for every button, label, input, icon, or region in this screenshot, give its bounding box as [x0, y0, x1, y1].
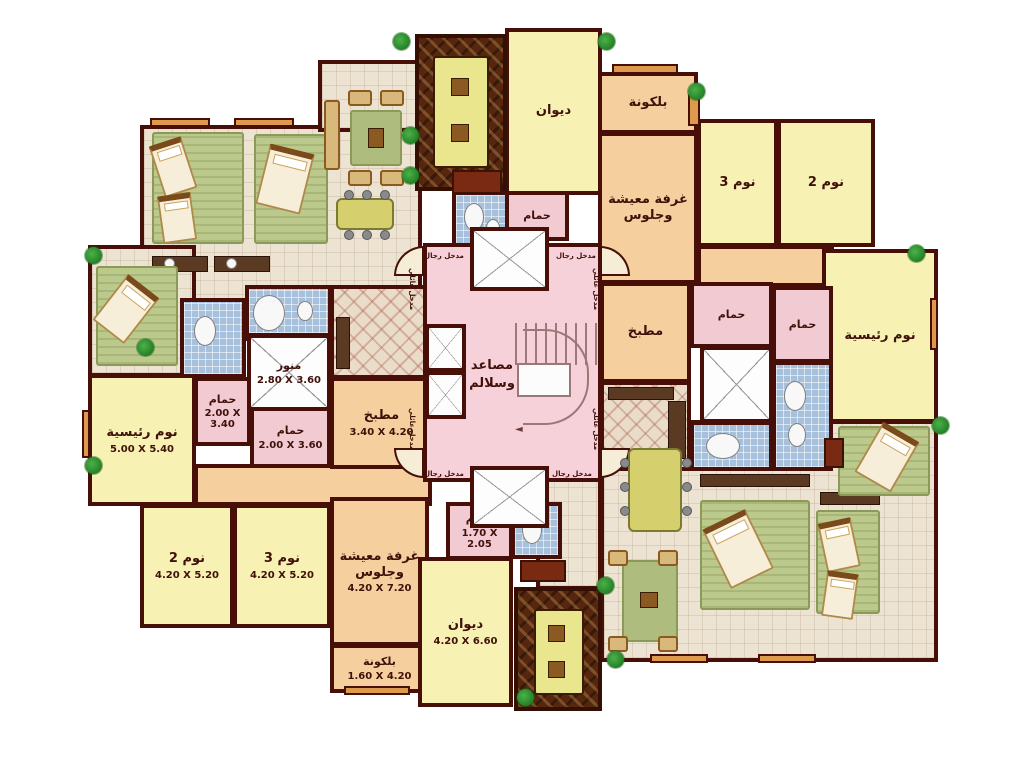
elevator-shaft-bottom	[470, 466, 549, 528]
stove-icon	[608, 387, 674, 400]
room-hammam-right-2: حمام	[772, 286, 833, 363]
room-label: غرفة معيشة وجلوس	[602, 192, 694, 225]
room-label: ديوان	[445, 617, 486, 633]
room-label: نوم 3	[716, 175, 758, 191]
seat-mat	[451, 78, 469, 96]
room-dims: 4.20 X 5.20	[250, 570, 314, 581]
chair	[362, 190, 372, 200]
room-bedroom2-top-right: نوم 2	[777, 119, 875, 247]
plant-icon	[137, 339, 154, 356]
room-label: منور	[274, 359, 305, 373]
plant-icon	[517, 689, 534, 706]
staircase: ◄	[515, 323, 599, 435]
entrance-label-men: مدخل رجال	[552, 470, 592, 478]
window-ledge	[344, 686, 410, 695]
plant-icon	[598, 33, 615, 50]
dining-table	[336, 198, 394, 230]
chair	[380, 190, 390, 200]
armchair	[658, 550, 678, 566]
majlis-rug	[433, 56, 489, 168]
window-ledge	[930, 298, 938, 350]
room-label: بلكونة	[360, 655, 399, 669]
lightwell-right	[700, 346, 773, 423]
stair-direction-arrow: ◄	[515, 424, 523, 435]
bed	[821, 570, 859, 620]
sofa	[324, 100, 340, 170]
room-label: نوم رئيسية	[103, 425, 180, 441]
room-master-left: نوم رئيسية 5.00 X 5.40	[88, 374, 196, 506]
armchair	[608, 636, 628, 652]
elevator-cab-2	[425, 371, 466, 419]
room-label: حمام	[274, 424, 308, 438]
plant-icon	[402, 127, 419, 144]
vanity-counter	[214, 256, 270, 272]
chair	[620, 458, 630, 468]
room-master-right: نوم رئيسية	[822, 249, 938, 423]
room-label: نوم رئيسية	[841, 328, 918, 344]
room-dims: 4.20 X 5.20	[155, 570, 219, 581]
plant-icon	[908, 245, 925, 262]
room-label: حمام	[786, 318, 820, 332]
majlis-rug	[534, 609, 584, 695]
fridge-icon	[336, 317, 350, 369]
armchair	[348, 170, 372, 186]
room-bedroom2-bottom-left: نوم 2 4.20 X 5.20	[140, 504, 234, 628]
window-ledge	[234, 118, 294, 127]
console-table	[520, 560, 566, 582]
armchair	[380, 90, 404, 106]
majlis-top	[415, 34, 507, 191]
room-dims: 1.70 X 2.05	[450, 528, 509, 550]
armchair	[658, 636, 678, 652]
core-label: مصاعد وسلالم	[457, 357, 527, 393]
plant-icon	[932, 417, 949, 434]
room-label: مطبخ	[361, 408, 402, 424]
room-bedroom3-top-right: نوم 3	[697, 119, 778, 247]
entrance-label-men: مدخل رجال	[556, 252, 596, 260]
plant-icon	[597, 577, 614, 594]
room-label: حمام	[206, 393, 240, 407]
armchair	[348, 90, 372, 106]
room-label: حمام	[520, 209, 554, 223]
room-kitchen-right: مطبخ	[600, 282, 691, 383]
room-label: مطبخ	[625, 324, 666, 340]
room-dims: 2.00 X 3.40	[198, 408, 247, 430]
wardrobe	[824, 438, 844, 468]
seat-mat	[548, 661, 565, 678]
room-balcony-top-right: بلكونة	[598, 72, 698, 134]
room-dims: 2.00 X 3.60	[258, 440, 322, 451]
plant-icon	[393, 33, 410, 50]
chair	[344, 230, 354, 240]
room-label: حمام	[715, 308, 749, 322]
room-dims: 4.20 X 6.60	[433, 636, 497, 647]
room-label: ديوان	[533, 103, 574, 119]
plant-icon	[607, 651, 624, 668]
core-label-line2: وسلالم	[457, 375, 527, 393]
room-hammam-left-1: حمام 2.00 X 3.40	[194, 377, 251, 446]
bathroom-left-blue	[245, 285, 332, 337]
room-label: نوم 2	[805, 175, 847, 191]
room-dims: 4.20 X 7.20	[347, 583, 411, 594]
elevator-shaft-top	[470, 227, 549, 291]
window-ledge	[758, 654, 816, 663]
coffee-table	[640, 592, 658, 608]
bed	[157, 192, 197, 244]
room-lightwell-left: منور 2.80 X 3.60	[247, 334, 331, 411]
window-ledge	[650, 654, 708, 663]
chair	[682, 506, 692, 516]
room-dims: 3.40 X 4.20	[349, 427, 413, 438]
core-label-line1: مصاعد	[457, 357, 527, 375]
bathtub-icon	[706, 433, 740, 459]
room-dims: 1.60 X 4.20	[347, 671, 411, 682]
chair	[362, 230, 372, 240]
armchair	[380, 170, 404, 186]
right-apartment-corridor	[697, 245, 834, 287]
sink-icon	[226, 258, 237, 269]
room-living-bottom-left: غرفة معيشة وجلوس 4.20 X 7.20	[330, 497, 429, 646]
room-diwan-bottom: ديوان 4.20 X 6.60	[418, 557, 513, 707]
room-label: نوم 3	[261, 551, 303, 567]
entrance-label-men: مدخل رجال	[424, 252, 464, 260]
plant-icon	[402, 167, 419, 184]
room-label: غرفة معيشة وجلوس	[334, 549, 425, 582]
entrance-label-family: مدخل عائلي	[592, 268, 600, 310]
bathtub-icon	[784, 381, 806, 411]
chair	[682, 458, 692, 468]
room-dims: 2.80 X 3.60	[257, 375, 321, 386]
plant-icon	[85, 247, 102, 264]
room-label: بلكونة	[626, 95, 671, 111]
entrance-label-family: مدخل عائلي	[408, 268, 416, 310]
floor-plan: ديوان حمام بلكونة غرفة معيشة وجلوس نوم 3…	[0, 0, 1024, 768]
toilet-icon	[788, 423, 806, 447]
console-table	[452, 170, 502, 194]
wardrobe	[700, 474, 810, 487]
room-bedroom3-bottom-left: نوم 3 4.20 X 5.20	[233, 504, 331, 628]
plant-icon	[688, 83, 705, 100]
entrance-label-family: مدخل عائلي	[592, 408, 600, 450]
bathroom-right-low-blue	[690, 421, 773, 471]
plant-icon	[85, 457, 102, 474]
chair	[380, 230, 390, 240]
toilet-icon	[297, 301, 313, 321]
bathtub-icon	[253, 295, 285, 331]
room-label: نوم 2	[166, 551, 208, 567]
room-hammam-left-2: حمام 2.00 X 3.60	[250, 407, 331, 468]
window-ledge	[612, 64, 678, 74]
kitchen-left-floor	[330, 285, 433, 379]
window-ledge	[82, 410, 90, 458]
entrance-label-men: مدخل رجال	[424, 470, 464, 478]
entrance-label-family: مدخل عائلي	[408, 408, 416, 450]
chair	[620, 506, 630, 516]
room-diwan-top: ديوان	[505, 28, 602, 195]
room-dims: 5.00 X 5.40	[110, 444, 174, 455]
chair	[682, 482, 692, 492]
seat-mat	[451, 124, 469, 142]
window-ledge	[150, 118, 210, 127]
bathtub-icon	[194, 316, 216, 346]
elevator-cab-1	[425, 324, 466, 372]
dining-table	[628, 448, 682, 532]
armchair	[608, 550, 628, 566]
bathroom-top-left-blue	[180, 298, 246, 378]
chair	[620, 482, 630, 492]
coffee-table	[368, 128, 384, 148]
room-hammam-right-1: حمام	[690, 282, 773, 348]
seat-mat	[548, 625, 565, 642]
chair	[344, 190, 354, 200]
